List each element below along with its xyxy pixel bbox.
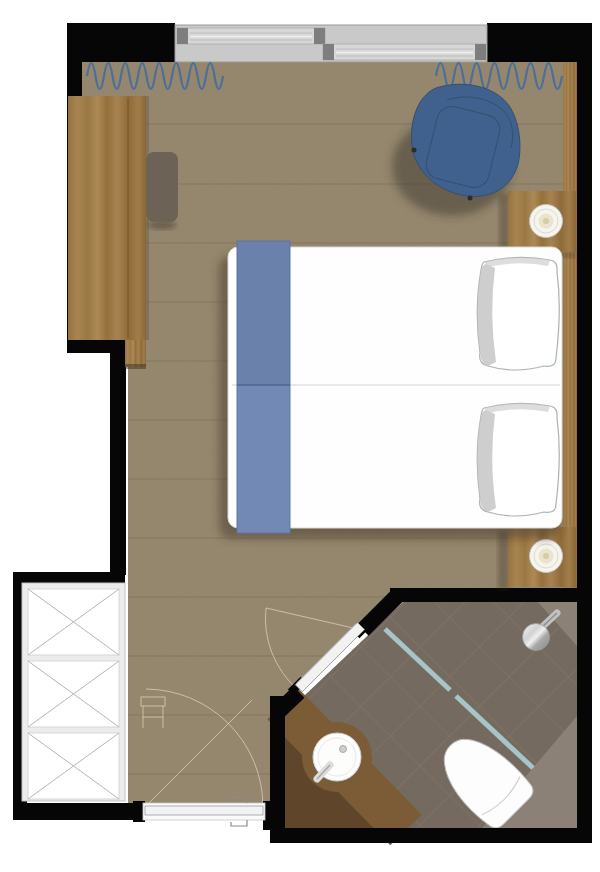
headboard-wall-panel (563, 62, 577, 588)
window-handle (323, 44, 334, 60)
entry-door-handle (231, 820, 247, 826)
wardrobe-section (28, 661, 119, 727)
floor-plan (0, 0, 600, 872)
sliding-window (175, 25, 487, 62)
wall-bottom-left (13, 803, 143, 820)
drain (340, 746, 347, 753)
bed-runner (237, 241, 290, 533)
floor-plan-canvas (0, 0, 600, 872)
armchair-foot (412, 148, 417, 153)
wall-top-right (487, 23, 592, 62)
window-handle (314, 28, 325, 44)
wall-left-mid (110, 339, 126, 575)
table-lamp (530, 205, 563, 238)
wardrobe-section (28, 733, 119, 799)
window-handle (177, 28, 188, 44)
window-handle (475, 44, 486, 60)
pillow-bottom (477, 403, 559, 516)
pillow-top (477, 257, 559, 370)
wall-bathroom-top (390, 588, 592, 602)
wardrobe-section (28, 589, 119, 655)
window-panel-left (177, 28, 325, 44)
armchair-foot (468, 196, 473, 201)
double-bed (219, 241, 562, 539)
wall-right (577, 23, 592, 843)
wall-top-left (67, 23, 175, 62)
table-lamp (530, 540, 563, 573)
wall-bathroom-bottom (270, 828, 592, 843)
wardrobe (22, 583, 125, 801)
desk-stool (146, 152, 178, 230)
entry-door-leaf (145, 806, 263, 815)
desk-console (68, 96, 149, 369)
window-panel-right (323, 44, 486, 60)
